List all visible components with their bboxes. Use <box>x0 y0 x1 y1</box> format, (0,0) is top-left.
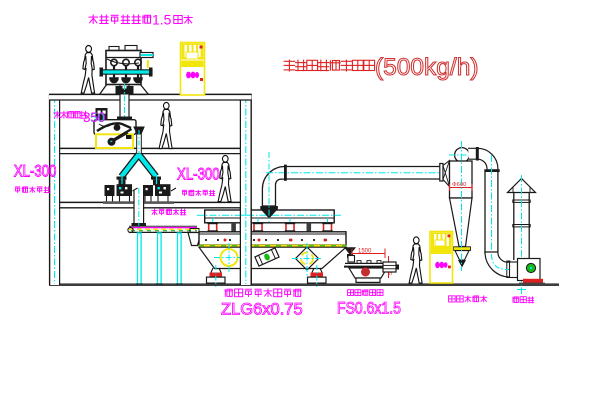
svg-text:(500kg/h): (500kg/h) <box>375 54 479 81</box>
svg-text:XL-300: XL-300 <box>14 162 57 181</box>
svg-text:350: 350 <box>83 110 106 125</box>
svg-text:FS0.6x1.5: FS0.6x1.5 <box>337 299 401 317</box>
svg-text:1.5: 1.5 <box>152 12 172 28</box>
svg-text:1500: 1500 <box>358 249 372 255</box>
svg-text:XL-300: XL-300 <box>177 165 220 184</box>
svg-text:ZLG6x0.75: ZLG6x0.75 <box>221 301 303 319</box>
